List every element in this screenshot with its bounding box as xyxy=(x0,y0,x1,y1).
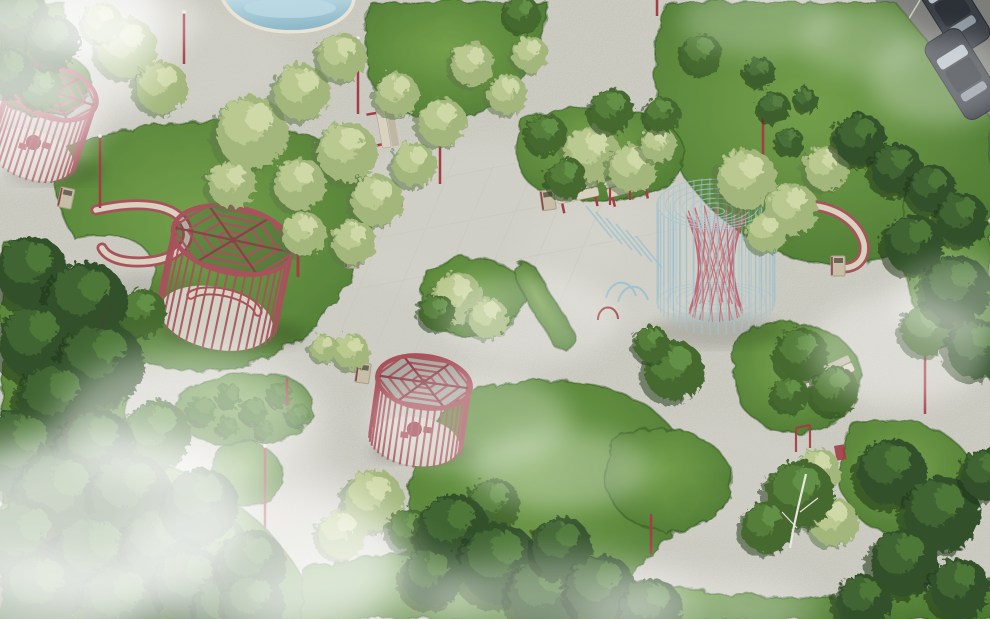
tree-canopy-top xyxy=(346,336,360,350)
tree-canopy-top xyxy=(656,98,670,112)
park-scene-canvas xyxy=(0,0,990,619)
tree-canopy-top xyxy=(925,168,943,186)
tree-canopy-top xyxy=(646,328,660,342)
tree-canopy-top xyxy=(243,101,270,128)
tree-canopy-top xyxy=(955,196,975,216)
tree-canopy-top xyxy=(435,101,453,119)
tree-canopy-top xyxy=(906,218,929,241)
tree-canopy-top xyxy=(135,291,153,309)
tree-canopy-top xyxy=(77,268,107,298)
tree-canopy-top xyxy=(366,474,389,497)
tree-canopy-top xyxy=(853,116,873,136)
trash-bin xyxy=(831,256,845,276)
fog-patch xyxy=(440,275,620,365)
tree-canopy-top xyxy=(785,186,805,206)
tree-canopy-top xyxy=(319,335,330,346)
tree-canopy-top xyxy=(895,533,921,559)
tree-canopy-top xyxy=(554,521,577,544)
tree-canopy-top xyxy=(298,214,315,231)
fog-patch xyxy=(470,430,650,510)
tree-canopy-top xyxy=(294,68,315,89)
tree-canopy-top xyxy=(760,504,780,524)
tree-canopy-top xyxy=(370,177,390,197)
lamp-head xyxy=(98,134,102,138)
tree-canopy-top xyxy=(802,88,811,97)
tree-canopy-top xyxy=(769,92,781,104)
tree-canopy-top xyxy=(23,241,50,268)
tree-canopy-top xyxy=(335,36,353,54)
tree-canopy-top xyxy=(466,44,483,61)
tree-canopy-top xyxy=(339,126,362,149)
tree-canopy-top xyxy=(856,578,877,599)
tree-canopy-top xyxy=(431,296,445,310)
tree-canopy-top xyxy=(952,562,975,585)
tree-canopy-top xyxy=(293,161,313,181)
tree-canopy-top xyxy=(666,344,689,367)
tree-canopy-top xyxy=(348,222,365,239)
tree-canopy-top xyxy=(890,146,910,166)
tree-canopy-top xyxy=(445,499,472,526)
tree-canopy-top xyxy=(490,530,520,560)
tree-canopy-top xyxy=(225,163,243,181)
tree-canopy-top xyxy=(408,144,425,161)
tree-canopy-top xyxy=(541,116,556,131)
tree-canopy-top xyxy=(785,129,796,140)
park-aerial-render xyxy=(0,0,990,619)
tree-canopy-top xyxy=(755,58,766,69)
tree-canopy-top xyxy=(92,328,124,360)
tree-canopy-top xyxy=(784,378,798,392)
tree-canopy-top xyxy=(606,90,623,107)
tree-canopy-top xyxy=(27,310,56,339)
tree-canopy-top xyxy=(561,160,576,175)
bin-opening xyxy=(834,258,843,263)
tree-canopy-top xyxy=(391,74,408,91)
tree-canopy-top xyxy=(501,76,516,91)
tree-canopy-top xyxy=(760,214,775,229)
tree-canopy-top xyxy=(739,153,762,176)
tree-canopy-top xyxy=(883,443,909,469)
tree-canopy-top xyxy=(524,38,538,52)
